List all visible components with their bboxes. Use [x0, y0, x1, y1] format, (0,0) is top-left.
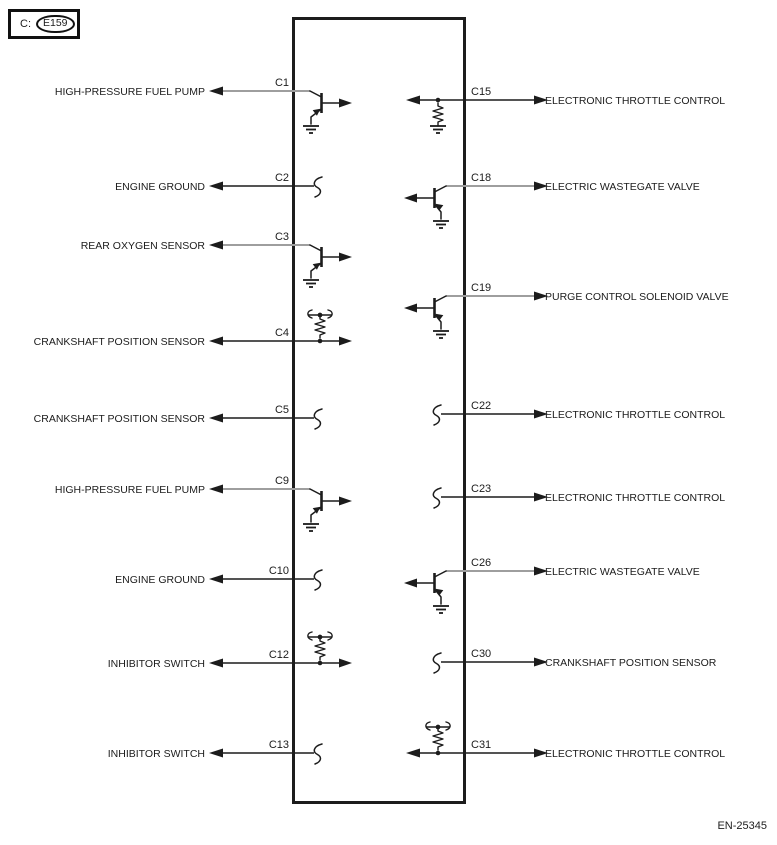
pullup-hook-right	[446, 722, 450, 730]
junction-dot	[318, 635, 323, 640]
break-symbol	[314, 409, 322, 429]
arrow-left-icon	[209, 337, 223, 346]
pin-label: C23	[471, 483, 491, 495]
arrow-left-icon	[209, 414, 223, 423]
collector-lead	[310, 91, 322, 97]
arrow-left-icon	[209, 241, 223, 250]
ground-symbol	[430, 126, 446, 133]
pin-label: C5	[275, 404, 289, 416]
row-C3: REAR OXYGEN SENSORC3	[81, 231, 352, 287]
row-C30: CRANKSHAFT POSITION SENSORC30	[433, 648, 716, 673]
row-C5: CRANKSHAFT POSITION SENSORC5	[34, 404, 322, 429]
document-code: EN-25345	[717, 820, 767, 832]
signal-label: ELECTRONIC THROTTLE CONTROL	[545, 492, 725, 504]
junction-dot	[318, 313, 323, 318]
arrow-right-icon	[339, 337, 352, 346]
row-C12: INHIBITOR SWITCHC12	[108, 632, 352, 670]
transistor-symbol	[303, 245, 352, 287]
base-arrow-icon	[404, 579, 417, 588]
arrow-left-icon	[209, 749, 223, 758]
signal-label: INHIBITOR SWITCH	[108, 658, 205, 670]
arrow-left-icon	[209, 485, 223, 494]
pin-label: C10	[269, 565, 289, 577]
signal-label: ELECTRIC WASTEGATE VALVE	[545, 181, 700, 193]
arrow-left-icon	[406, 749, 420, 758]
ground-symbol	[433, 331, 449, 338]
ecm-pinout-diagram: HIGH-PRESSURE FUEL PUMPC1ENGINE GROUNDC2…	[0, 0, 777, 845]
pin-label: C1	[275, 77, 289, 89]
break-symbol	[433, 488, 441, 508]
base-arrow-icon	[404, 194, 417, 203]
resistor-zigzag	[433, 103, 443, 126]
pin-label: C26	[471, 557, 491, 569]
signal-label: ELECTRONIC THROTTLE CONTROL	[545, 95, 725, 107]
resistor-zigzag	[315, 637, 325, 660]
transistor-symbol	[404, 571, 449, 613]
pin-label: C4	[275, 327, 289, 339]
transistor-symbol	[404, 186, 449, 228]
pin-label: C15	[471, 86, 491, 98]
wiring-diagram-page: C: E159 HIGH-PRESSURE FUEL PUMPC1ENGINE …	[0, 0, 777, 845]
base-arrow-icon	[404, 304, 417, 313]
row-C9: HIGH-PRESSURE FUEL PUMPC9	[55, 475, 352, 531]
collector-lead	[435, 296, 447, 302]
junction-dot	[436, 98, 441, 103]
pin-label: C12	[269, 649, 289, 661]
arrow-left-icon	[209, 659, 223, 668]
pullup-hook-right	[328, 632, 332, 640]
resistor-zigzag	[433, 727, 443, 750]
signal-label: ELECTRONIC THROTTLE CONTROL	[545, 409, 725, 421]
ground-symbol	[303, 524, 319, 531]
arrow-right-icon	[339, 659, 352, 668]
break-symbol	[314, 570, 322, 590]
base-arrow-icon	[339, 99, 352, 108]
signal-label: REAR OXYGEN SENSOR	[81, 240, 206, 252]
break-symbol	[433, 653, 441, 673]
transistor-symbol	[303, 489, 352, 531]
pin-label: C2	[275, 172, 289, 184]
ground-symbol	[433, 221, 449, 228]
pullup-hook-left	[426, 722, 430, 730]
resistor-zigzag	[315, 315, 325, 338]
row-C2: ENGINE GROUNDC2	[115, 172, 322, 197]
row-C10: ENGINE GROUNDC10	[115, 565, 322, 590]
signal-label: ELECTRIC WASTEGATE VALVE	[545, 566, 700, 578]
arrow-left-icon	[209, 87, 223, 96]
arrow-left-icon	[209, 575, 223, 584]
break-symbol	[314, 744, 322, 764]
row-C18: ELECTRIC WASTEGATE VALVEC18	[404, 172, 700, 228]
signal-label: ENGINE GROUND	[115, 574, 205, 586]
pin-label: C18	[471, 172, 491, 184]
break-symbol	[433, 405, 441, 425]
junction-dot	[318, 661, 323, 666]
collector-lead	[435, 571, 447, 577]
junction-dot	[436, 725, 441, 730]
base-arrow-icon	[339, 253, 352, 262]
row-C15: ELECTRONIC THROTTLE CONTROLC15	[406, 86, 725, 133]
junction-dot	[318, 339, 323, 344]
signal-label: INHIBITOR SWITCH	[108, 748, 205, 760]
collector-lead	[310, 489, 322, 495]
row-C31: ELECTRONIC THROTTLE CONTROLC31	[406, 722, 725, 760]
pullup-hook-left	[308, 310, 312, 318]
pin-label: C19	[471, 282, 491, 294]
pin-label: C9	[275, 475, 289, 487]
row-C22: ELECTRONIC THROTTLE CONTROLC22	[433, 400, 725, 425]
signal-label: HIGH-PRESSURE FUEL PUMP	[55, 86, 205, 98]
pin-label: C30	[471, 648, 491, 660]
break-symbol	[314, 177, 322, 197]
pin-label: C13	[269, 739, 289, 751]
row-C4: CRANKSHAFT POSITION SENSORC4	[34, 310, 352, 348]
pin-label: C31	[471, 739, 491, 751]
collector-lead	[435, 186, 447, 192]
row-C19: PURGE CONTROL SOLENOID VALVEC19	[404, 282, 729, 338]
pullup-hook-left	[308, 632, 312, 640]
ground-symbol	[303, 280, 319, 287]
row-C13: INHIBITOR SWITCHC13	[108, 739, 322, 764]
arrow-left-icon	[406, 96, 420, 105]
junction-dot	[436, 751, 441, 756]
ground-symbol	[433, 606, 449, 613]
arrow-left-icon	[209, 182, 223, 191]
signal-label: PURGE CONTROL SOLENOID VALVE	[545, 291, 729, 303]
row-C23: ELECTRONIC THROTTLE CONTROLC23	[433, 483, 725, 508]
signal-label: CRANKSHAFT POSITION SENSOR	[34, 336, 206, 348]
signal-label: ENGINE GROUND	[115, 181, 205, 193]
transistor-symbol	[404, 296, 449, 338]
pullup-hook-right	[328, 310, 332, 318]
row-C1: HIGH-PRESSURE FUEL PUMPC1	[55, 77, 352, 133]
row-C26: ELECTRIC WASTEGATE VALVEC26	[404, 557, 700, 613]
base-arrow-icon	[339, 497, 352, 506]
pin-label: C22	[471, 400, 491, 412]
signal-label: ELECTRONIC THROTTLE CONTROL	[545, 748, 725, 760]
transistor-symbol	[303, 91, 352, 133]
pin-label: C3	[275, 231, 289, 243]
collector-lead	[310, 245, 322, 251]
ground-symbol	[303, 126, 319, 133]
signal-label: CRANKSHAFT POSITION SENSOR	[34, 413, 206, 425]
signal-label: CRANKSHAFT POSITION SENSOR	[545, 657, 717, 669]
signal-label: HIGH-PRESSURE FUEL PUMP	[55, 484, 205, 496]
